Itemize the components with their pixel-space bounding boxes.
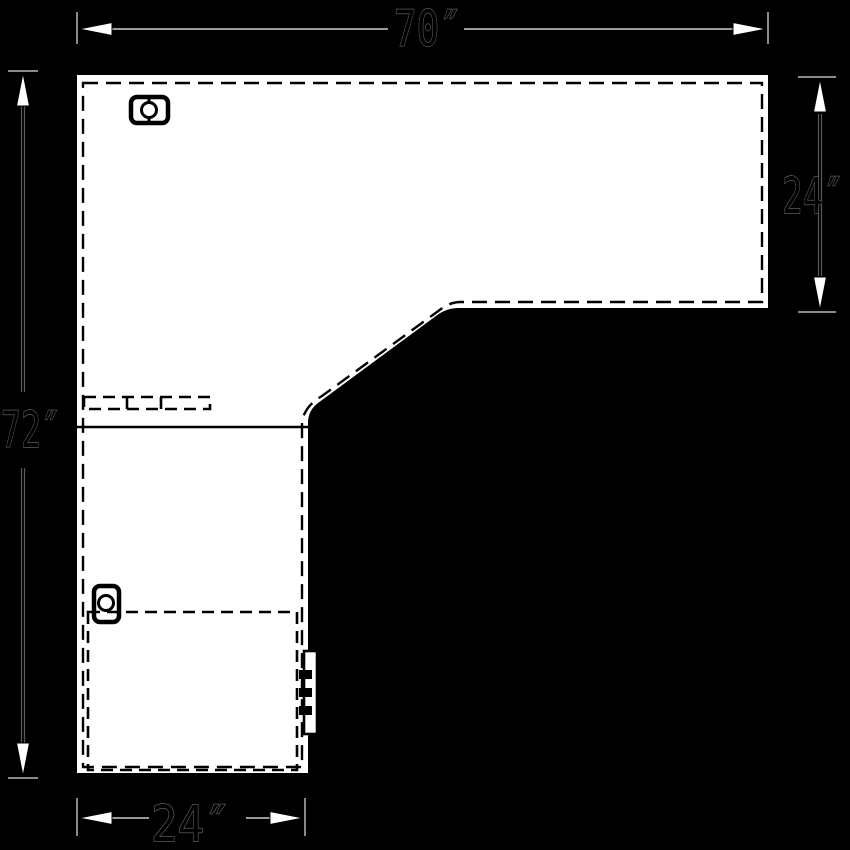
dim-bottom-label: 24″ (151, 795, 231, 850)
desk-plan-drawing: 70″ 24″ 72″ 24″ (0, 0, 850, 850)
dim-bottom: 24″ (77, 795, 305, 850)
dim-top-arrow-right-icon (733, 23, 766, 36)
dim-top-label: 70″ (394, 0, 462, 58)
desk-surface (75, 73, 770, 775)
dim-top-arrow-left-icon (79, 23, 112, 36)
dim-bottom-arrow-right-icon (270, 812, 303, 825)
dim-top: 70″ (77, 0, 768, 58)
dim-right-label: 24″ (782, 167, 844, 225)
dim-left-arrow-down-icon (17, 743, 30, 776)
dim-left-label: 72″ (1, 401, 61, 459)
grommet-top-icon (131, 97, 168, 123)
drawing-canvas: 70″ 24″ 72″ 24″ (0, 0, 850, 850)
dim-left-arrow-up-icon (17, 73, 30, 106)
dim-bottom-arrow-left-icon (79, 812, 112, 825)
dim-right: 24″ (782, 77, 844, 312)
grommet-left-icon (94, 586, 119, 622)
dim-right-arrow-up-icon (814, 79, 827, 112)
dim-left: 72″ (1, 71, 61, 778)
dim-right-arrow-down-icon (814, 277, 827, 310)
